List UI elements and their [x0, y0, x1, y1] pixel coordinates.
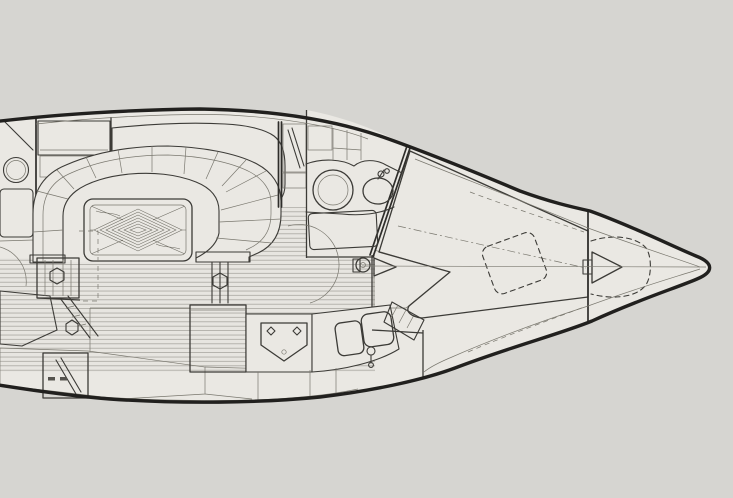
boat-plan-svg: Sailboat interior layout plan — [0, 0, 733, 498]
galley-stove-counter — [246, 314, 312, 372]
boat-plan-page: Sailboat interior layout plan — [0, 0, 733, 498]
